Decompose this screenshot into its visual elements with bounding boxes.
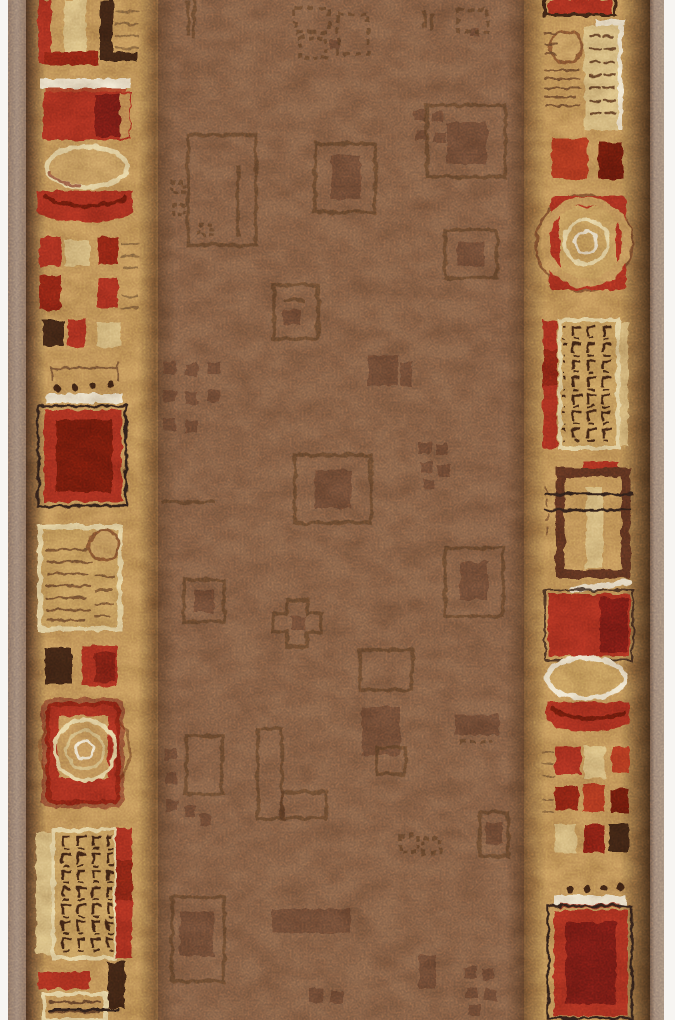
- rug-photo: [0, 0, 675, 1020]
- screenshot-root: [0, 0, 675, 1020]
- carpet-grain-texture: [8, 0, 664, 1020]
- right-background-sliver: [664, 0, 675, 1020]
